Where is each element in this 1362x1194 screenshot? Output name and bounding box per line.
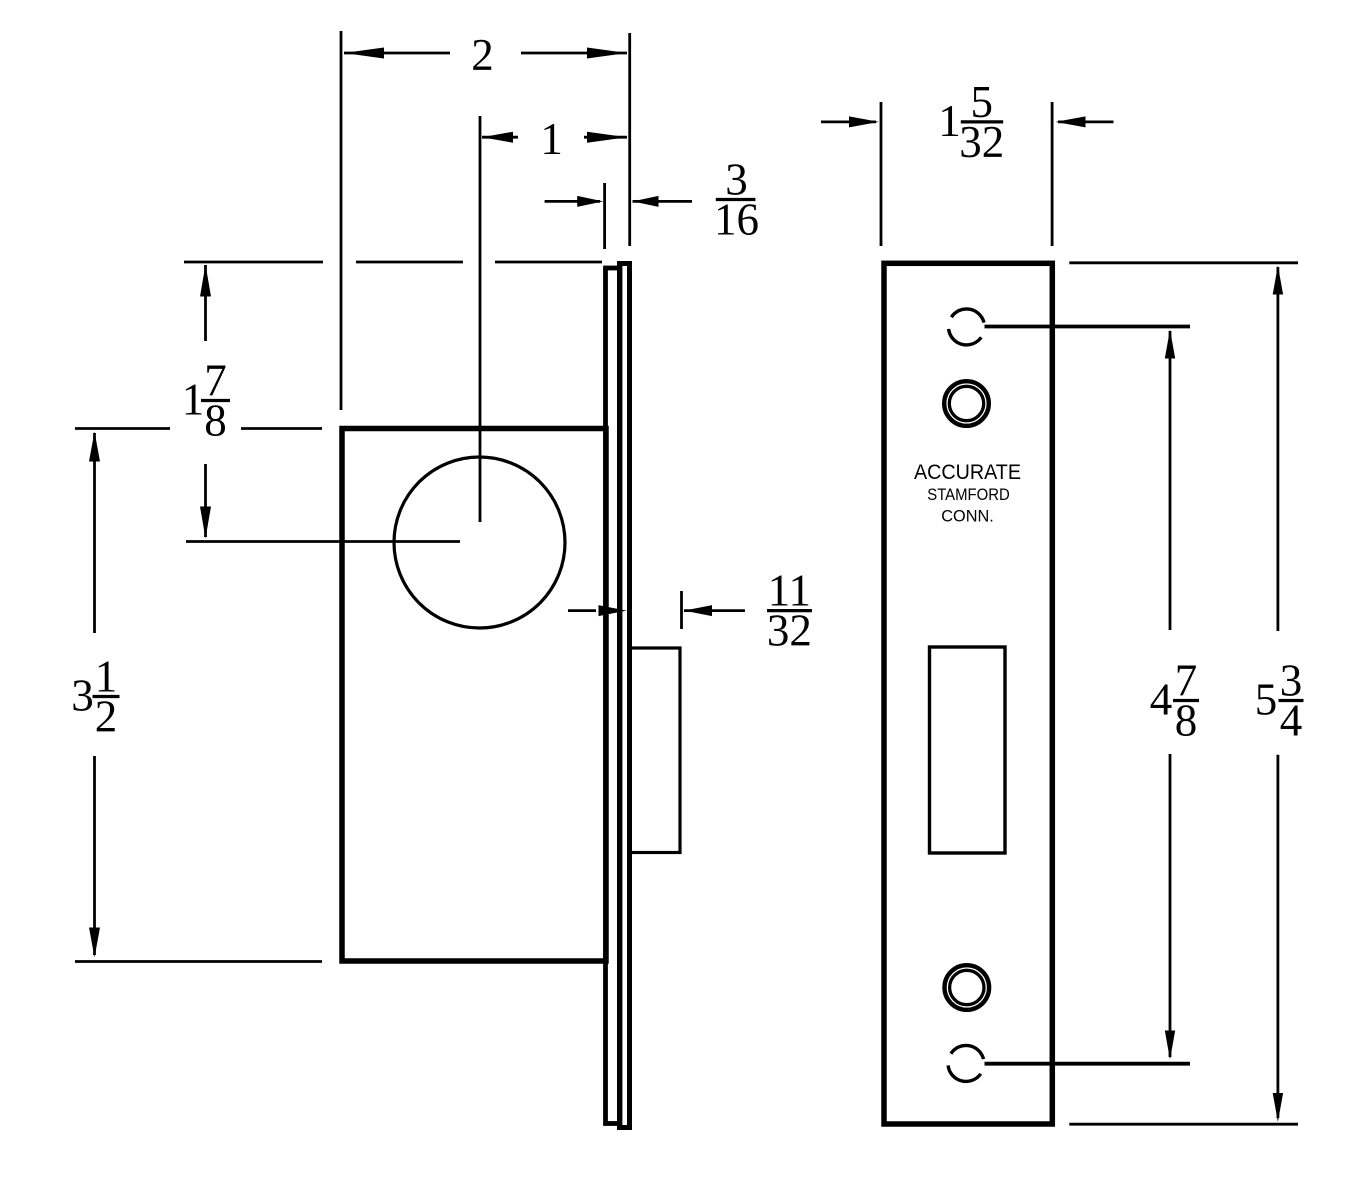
svg-text:CONN.: CONN.	[941, 507, 994, 526]
svg-text:32: 32	[767, 606, 812, 656]
svg-text:1: 1	[540, 114, 563, 164]
svg-text:3: 3	[71, 671, 94, 721]
svg-text:8: 8	[204, 396, 227, 446]
svg-text:16: 16	[714, 195, 759, 245]
svg-text:2: 2	[471, 30, 494, 80]
svg-text:ACCURATE: ACCURATE	[914, 461, 1021, 484]
svg-text:1: 1	[938, 96, 961, 146]
svg-text:32: 32	[959, 117, 1004, 167]
svg-text:STAMFORD: STAMFORD	[927, 486, 1010, 504]
svg-text:8: 8	[1175, 696, 1198, 746]
svg-text:1: 1	[182, 375, 205, 425]
svg-text:5: 5	[1255, 675, 1278, 725]
svg-text:4: 4	[1150, 675, 1173, 725]
svg-text:4: 4	[1280, 696, 1303, 746]
svg-text:2: 2	[95, 692, 118, 742]
